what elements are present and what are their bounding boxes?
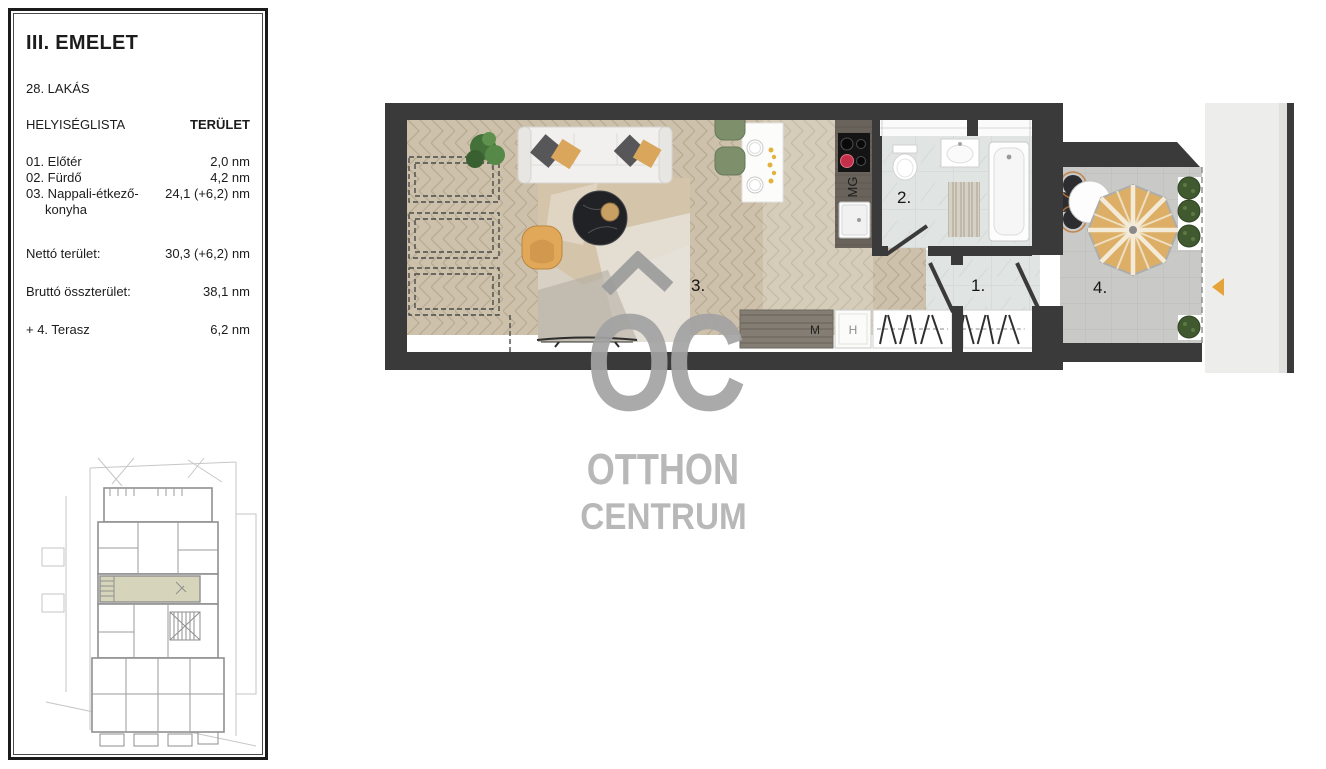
coffee-table: [573, 191, 627, 245]
apartment-number: 28. LAKÁS: [26, 81, 250, 96]
room-label: 01. Előtér: [26, 154, 82, 170]
washer-label: M: [810, 323, 820, 337]
bath-mat: [948, 182, 980, 237]
wardrobe-hall: [955, 310, 1035, 348]
bathroom-windows: [880, 120, 1032, 136]
kitchen-sink: [839, 202, 870, 238]
highlighted-unit: [100, 576, 200, 602]
label-hall: 1.: [971, 276, 985, 295]
washer-cabinet: M: [740, 310, 833, 348]
room-area: 4,2 nm: [210, 170, 250, 186]
net-area-row: Nettó terület: 30,3 (+6,2) nm: [26, 246, 250, 262]
room-label: 03. Nappali-étkező- konyha: [26, 186, 139, 218]
wardrobe-living: [873, 310, 952, 348]
list-header-row: HELYISÉGLISTA TERÜLET: [26, 117, 250, 132]
bathroom-sink: [941, 139, 979, 167]
toilet-tank: [893, 145, 917, 153]
terrace-umbrella: [1088, 185, 1178, 275]
room-row-1: 01. Előtér 2,0 nm: [26, 154, 250, 170]
label-living: 3.: [691, 276, 705, 295]
room-label: 02. Fürdő: [26, 170, 82, 186]
terrace-area-row: + 4. Terasz 6,2 nm: [26, 322, 250, 338]
room-area: 2,0 nm: [210, 154, 250, 170]
room-area: 24,1 (+6,2) nm: [165, 186, 250, 202]
floorplan-sheet: III. EMELET 28. LAKÁS HELYISÉGLISTA TERÜ…: [0, 0, 1326, 769]
microwave-label: MG: [845, 177, 860, 198]
bathtub: [989, 142, 1029, 241]
fridge-cabinet: H: [835, 310, 871, 348]
logo-line1: OTTHON: [587, 448, 739, 492]
info-panel: III. EMELET 28. LAKÁS HELYISÉGLISTA TERÜ…: [13, 13, 263, 755]
room-list: 01. Előtér 2,0 nm 02. Fürdő 4,2 nm 03. N…: [26, 154, 250, 218]
floor-plan: MG M H: [383, 95, 1298, 395]
sofa: [518, 127, 672, 183]
area-header: TERÜLET: [190, 117, 250, 132]
kitchen-counter: MG: [835, 120, 873, 248]
dining-table: [742, 123, 783, 202]
armchair: [522, 226, 562, 269]
gross-area-row: Bruttó összterület: 38,1 nm: [26, 284, 250, 300]
room-row-2: 02. Fürdő 4,2 nm: [26, 170, 250, 186]
label-bath: 2.: [897, 188, 911, 207]
floor-title: III. EMELET: [26, 32, 250, 55]
room-row-3: 03. Nappali-étkező- konyha 24,1 (+6,2) n…: [26, 186, 250, 218]
logo-line2: CENTRUM: [580, 498, 746, 535]
fridge-label: H: [849, 323, 858, 337]
room-list-header: HELYISÉGLISTA: [26, 117, 125, 132]
label-terrace: 4.: [1093, 278, 1107, 297]
access-walkway: [1205, 103, 1292, 373]
site-plan-minimap: [38, 454, 263, 754]
cooktop: [838, 133, 870, 172]
